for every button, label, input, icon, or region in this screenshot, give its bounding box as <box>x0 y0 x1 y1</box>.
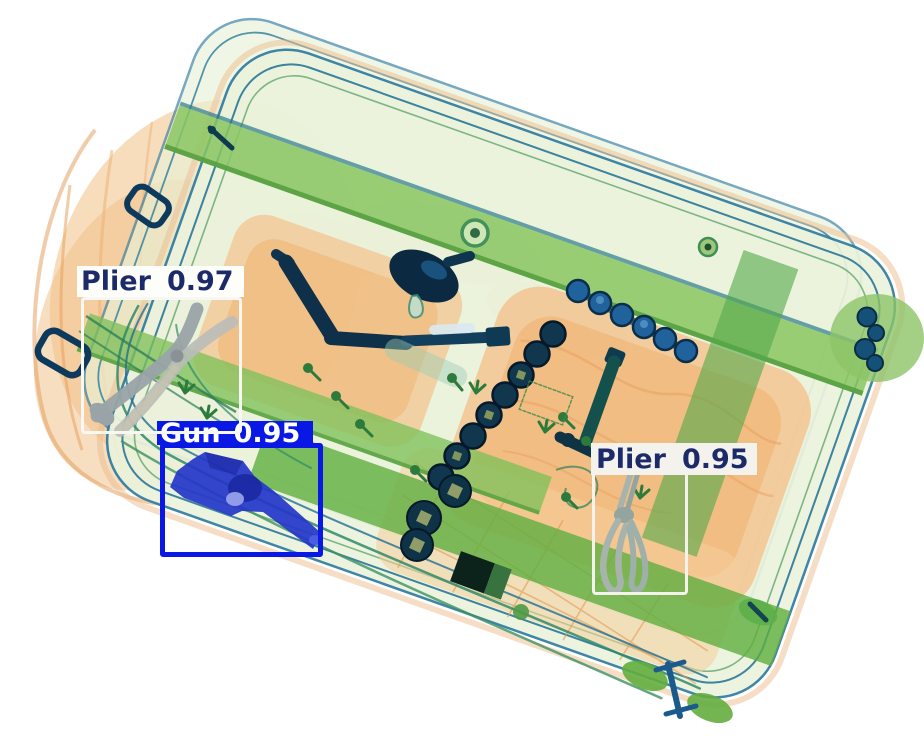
detection-score: 0.97 <box>167 268 234 295</box>
detection-box-plier-097 <box>81 297 242 434</box>
detection-label-plier-095: Plier 0.95 <box>591 443 757 475</box>
detection-box-gun <box>160 443 323 557</box>
detection-class: Plier <box>596 446 666 473</box>
parts-ball <box>830 294 924 382</box>
detection-class: Plier <box>81 268 151 295</box>
detection-label-plier-097: Plier 0.97 <box>77 266 244 297</box>
detection-score: 0.95 <box>682 446 749 473</box>
xray-scan-view: Gun 0.95 Plier 0.95 Plier 0.97 <box>0 0 924 749</box>
